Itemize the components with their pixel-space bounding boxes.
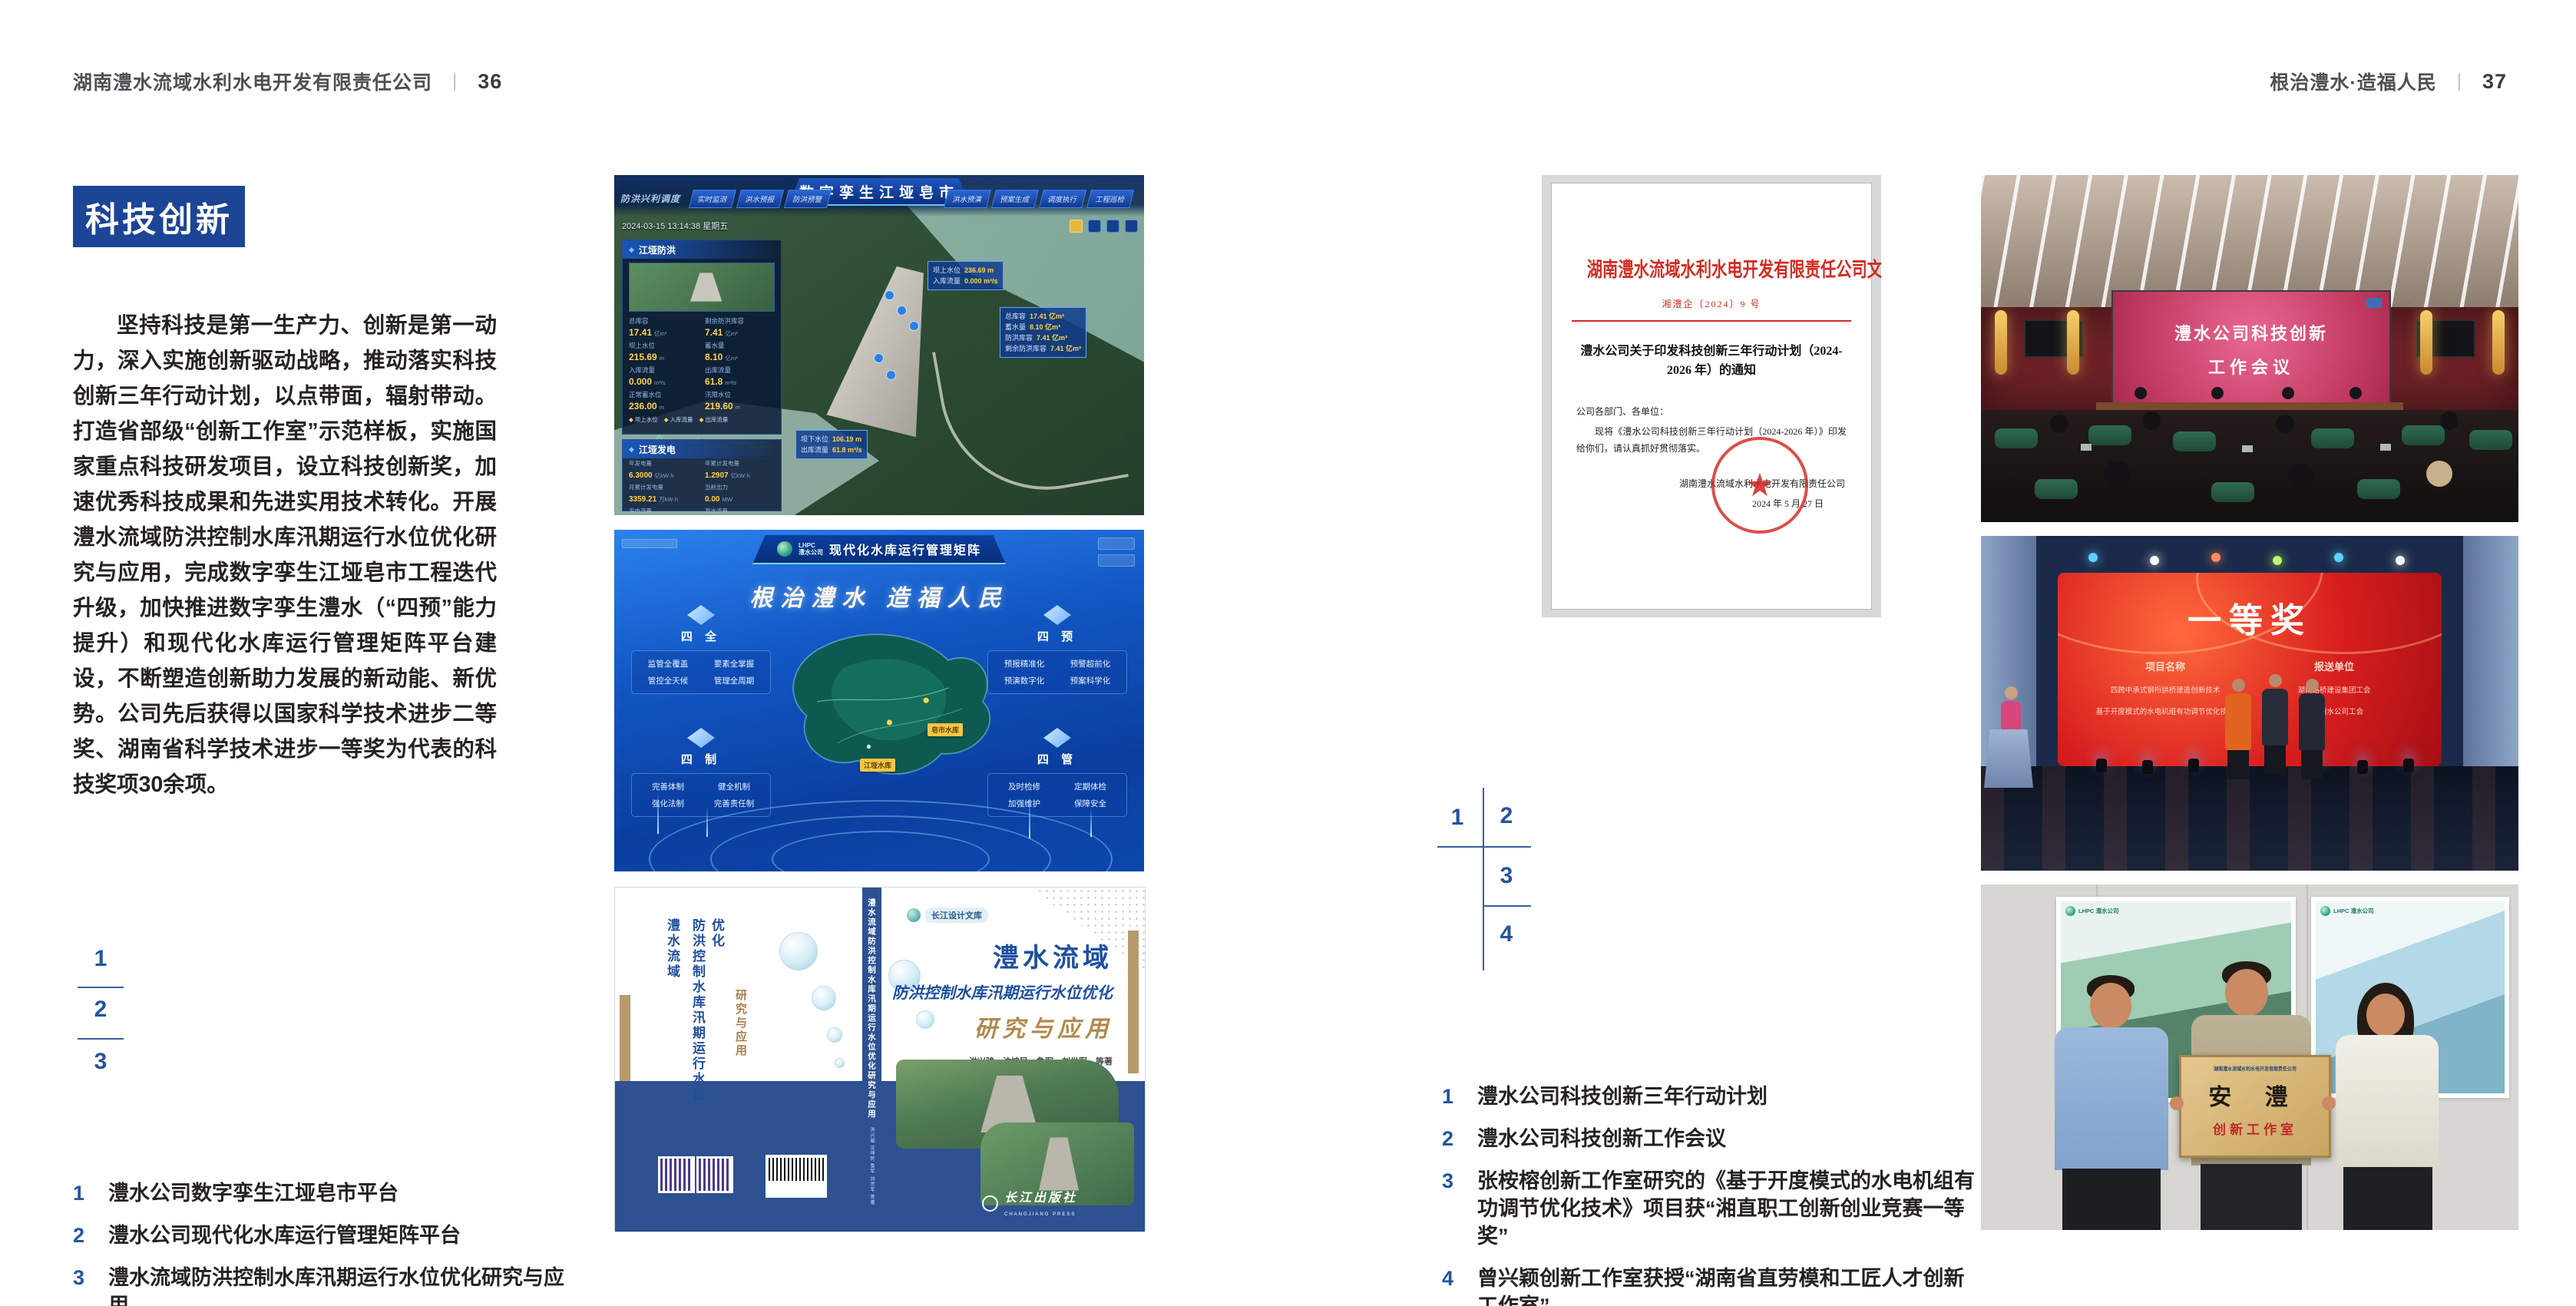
tan-bar xyxy=(1128,931,1139,1073)
alert-icon xyxy=(1088,220,1101,233)
spotlight xyxy=(2211,553,2221,562)
legend-item: ◆坝上水位 xyxy=(629,415,658,424)
panel-header: ◆ 江垭防洪 xyxy=(623,240,781,259)
spotlight xyxy=(2088,553,2098,562)
stat: 剩余防洪库容7.41亿m³ xyxy=(705,316,775,340)
magazine-spread: 湖南澧水流域水利水电开发有限责任公司 | 36 根治澧水·造福人民 | 37 科… xyxy=(0,0,2576,1306)
innovation-studio-plaque: 湖南澧水流域水利水电开发有限责任公司 安 澧 创新工作室 xyxy=(2179,1055,2331,1158)
chair xyxy=(2402,425,2445,445)
caption-row: 4 曾兴颖创新工作室获授“湖南省直劳模和工匠人才创新工作室” xyxy=(1442,1265,1979,1306)
matrix-timestamp-chip xyxy=(622,539,677,548)
figure-number-4: 4 xyxy=(1490,921,1523,947)
dashboard-tabs-right: 洪水预演 预案生成 调度执行 工程巡检 xyxy=(946,190,1136,208)
caption-text: 澧水公司现代化水库运行管理矩阵平台 xyxy=(108,1222,461,1249)
page-number-left: 36 xyxy=(478,70,502,94)
caption-number: 1 xyxy=(1442,1083,1477,1110)
figure-official-document: 湖南澧水流域水利水电开发有限责任公司文件 湘澧企〔2024〕9 号 澧水公司关于… xyxy=(1542,175,1881,617)
attendee xyxy=(2050,415,2068,433)
spotlight xyxy=(2150,556,2159,565)
caption-text: 澧水公司科技创新工作会议 xyxy=(1477,1125,1726,1152)
back-cover-title: 澧水流域 防洪控制水库汛期运行水位优化 研究与应用 xyxy=(663,918,749,1103)
logo-text: LHPC澧水公司 xyxy=(799,542,823,556)
reservoir-label: 皂市水库 xyxy=(928,723,963,736)
plaque-name: 安 澧 xyxy=(2181,1078,2329,1112)
attendee xyxy=(2440,412,2459,430)
tab-plan-generation: 预案生成 xyxy=(991,190,1039,208)
barcode xyxy=(766,1155,827,1198)
matrix-header: LHPC澧水公司 现代化水库运行管理矩阵 xyxy=(752,535,1006,564)
stage-light xyxy=(2096,759,2107,772)
chair xyxy=(2035,479,2078,499)
presidium-member xyxy=(2211,387,2224,399)
maintenance-icon xyxy=(1043,728,1071,748)
caption-number: 2 xyxy=(73,1222,108,1249)
series-logo-icon xyxy=(907,908,921,922)
dam-shape xyxy=(690,273,722,301)
figure-book-cover: 澧水流域 防洪控制水库汛期运行水位优化 研究与应用 澧水流域防洪控制水库汛期运行… xyxy=(614,887,1146,1232)
chair xyxy=(2357,479,2400,499)
matrix-group-siquan: 四 全 监管全覆盖要素全掌握 管控全天候管理全周期 xyxy=(631,605,771,694)
caption-number: 2 xyxy=(1442,1125,1477,1152)
callout-downstream: 坝下水位106.19 m 出库流量61.8 m³/s xyxy=(795,430,868,459)
stat: 年累计发电量1.2907亿kW·h xyxy=(705,458,775,482)
figure-index-rule xyxy=(1483,905,1531,907)
stat: 出库流量61.8m³/s xyxy=(705,365,775,389)
figure-index-rule xyxy=(78,1038,124,1040)
seal-star: ★ xyxy=(1745,466,1774,504)
chair xyxy=(2088,425,2131,445)
power-stats: 年发电量6.3000亿kW·h 年累计发电量1.2907亿kW·h 月累计发电量… xyxy=(623,458,781,515)
plaque-company-line: 湖南澧水流域水利水电开发有限责任公司 xyxy=(2187,1064,2323,1072)
panel-title: 江垭发电 xyxy=(639,443,676,456)
dashboard-tabs-left: 实时监测 洪水预报 防洪预警 xyxy=(691,190,834,208)
map-marker xyxy=(885,290,894,300)
dashboard-toolbar xyxy=(1070,220,1138,233)
laptop xyxy=(2380,444,2391,451)
caption-row: 3 张桉榕创新工作室研究的《基于开度模式的水电机组有功调节优化技术》项目获“湘直… xyxy=(1442,1167,1979,1250)
light-pillar xyxy=(706,806,708,837)
wall-lamp xyxy=(2420,310,2432,375)
page-number-right: 37 xyxy=(2482,70,2507,94)
publisher-icon xyxy=(982,1195,998,1212)
stage-light xyxy=(2403,759,2414,772)
caption-row: 3 澧水流域防洪控制水库汛期运行水位优化研究与应用 xyxy=(73,1264,564,1306)
stat: 正常蓄水位236.00m xyxy=(629,389,699,414)
caption-text: 曾兴颖创新工作室获授“湖南省直劳模和工匠人才创新工作室” xyxy=(1477,1265,1979,1306)
caption-text: 澧水流域防洪控制水库汛期运行水位优化研究与应用 xyxy=(108,1264,564,1306)
legend-item: ◆出库流量 xyxy=(699,415,729,424)
map-marker xyxy=(874,353,884,363)
figure-index-vline xyxy=(1483,788,1484,970)
official-seal: ★ xyxy=(1711,437,1808,534)
figure-digital-twin-dashboard: 防洪兴利调度 数字孪生江垭皂市 实时监测 洪水预报 防洪预警 洪水预演 预案生成… xyxy=(614,175,1144,515)
caption-number: 4 xyxy=(1442,1265,1477,1306)
lhpc-logo-icon xyxy=(2065,906,2075,916)
attendee xyxy=(2104,461,2130,487)
photo-award-ceremony: 一等奖 项目名称 四跨中承式钢桁拱桥建造创新技术 基于开度模式的水电机组有功调节… xyxy=(1981,536,2518,871)
stat: 发电流量0.00m³/s xyxy=(629,506,699,515)
stat: 当前出力0.00MW xyxy=(705,482,775,506)
plaque-subtitle: 创新工作室 xyxy=(2181,1119,2329,1138)
laptop xyxy=(2081,444,2092,451)
callout-capacity: 总库容17.41 亿m³ 蓄水量8.10 亿m³ 防洪库容7.41 亿m³ 剩余… xyxy=(1000,307,1086,358)
person-legs xyxy=(2062,1169,2161,1230)
slogan-text: 根治澧水·造福人民 xyxy=(2270,68,2436,95)
water-droplet xyxy=(835,1058,845,1068)
presidium-member xyxy=(2135,387,2147,399)
lhpc-logo-icon xyxy=(2320,906,2330,916)
stat: 入库流量0.000m³/s xyxy=(629,365,699,389)
stat: 蓄水量8.10亿m³ xyxy=(705,340,775,365)
tab-dispatch-execution: 调度执行 xyxy=(1039,190,1086,208)
person-head xyxy=(2366,994,2405,1037)
person-shirt-blue xyxy=(2055,1027,2168,1170)
caption-number: 1 xyxy=(73,1179,108,1207)
power-generation-panel: ◆ 江垭发电 年发电量6.3000亿kW·h 年累计发电量1.2907亿kW·h… xyxy=(622,439,782,511)
caption-number: 3 xyxy=(73,1264,108,1306)
spotlight xyxy=(2273,556,2282,565)
stage-light xyxy=(2142,760,2153,774)
person-shirt-white xyxy=(2336,1035,2439,1169)
flood-control-panel: ◆ 江垭防洪 总库容17.41亿m³ 剩余防洪库容7.41亿m³ 坝上水位215… xyxy=(622,240,782,435)
project-column: 项目名称 四跨中承式钢桁拱桥建造创新技术 基于开度模式的水电机组有功调节优化技术 xyxy=(2081,659,2250,716)
stat: 年发电量6.3000亿kW·h xyxy=(629,458,699,482)
presidium-member xyxy=(2349,387,2362,399)
map-marker xyxy=(886,370,896,380)
podium xyxy=(1984,729,2033,788)
document-salutation: 公司各部门、各单位： xyxy=(1576,405,1668,418)
figure-number-2: 2 xyxy=(78,997,124,1023)
company-name: 湖南澧水流域水利水电开发有限责任公司 xyxy=(73,68,432,95)
chart-legend: ◆坝上水位 ◆入库流量 ◆出库流量 xyxy=(623,414,781,424)
caption-text: 张桉榕创新工作室研究的《基于开度模式的水电机组有功调节优化技术》项目获“湘直职工… xyxy=(1477,1167,1979,1250)
presidium-table xyxy=(2096,402,2403,410)
flood-stats: 总库容17.41亿m³ 剩余防洪库容7.41亿m³ 坝上水位215.69m 蓄水… xyxy=(623,316,781,414)
hand xyxy=(2322,1096,2336,1110)
person-head xyxy=(2090,983,2131,1029)
awardee-suit xyxy=(2299,679,2325,779)
figure-number-2: 2 xyxy=(1490,803,1523,829)
figure-number-3: 3 xyxy=(78,1049,124,1075)
chair xyxy=(1995,428,2038,448)
diamond-icon: ◆ xyxy=(629,445,634,454)
spotlight xyxy=(2334,553,2343,562)
publisher-logo: 长江出版社CHANGJIANG PRESS xyxy=(982,1187,1077,1219)
figure-index-rule xyxy=(1437,846,1531,848)
photo-innovation-meeting: 澧水公司科技创新 工作会议 xyxy=(1981,175,2518,522)
award-title: 一等奖 xyxy=(2058,593,2442,642)
figure-number-1: 1 xyxy=(78,946,124,972)
light-pillar xyxy=(1029,798,1030,838)
dashboard-menu-label: 防洪兴利调度 xyxy=(620,192,680,205)
tab-flood-rehearsal: 洪水预演 xyxy=(944,190,991,208)
front-cover-titles: 澧水流域 防洪控制水库汛期运行水位优化 研究与应用 洪兴骏 沈坤民 鲁军 刘世军… xyxy=(891,937,1113,1067)
stat: 月累计发电量3359.21万kW·h xyxy=(629,482,699,506)
panel-header: ◆ 江垭发电 xyxy=(623,440,781,458)
institution-icon xyxy=(687,728,715,748)
figure-index-rule xyxy=(78,987,124,988)
matrix-group-siguan: 四 管 及时检修定期体检 加强维护保障安全 xyxy=(987,728,1127,817)
caption-row: 2 澧水公司现代化水库运行管理矩阵平台 xyxy=(73,1222,564,1249)
attendee xyxy=(2142,412,2161,430)
photo-studio-plaque: LHPC 澧水公司 LHPC 澧水公司 湖南澧水流域水利水电开发有限责任公司 安… xyxy=(1981,884,2518,1230)
caption-row: 2 澧水公司科技创新工作会议 xyxy=(1442,1125,1979,1152)
tab-realtime-monitor: 实时监测 xyxy=(689,190,736,208)
settings-icon xyxy=(1125,220,1138,233)
document-title: 澧水公司关于印发科技创新三年行动计划（2024-2026 年）的通知 xyxy=(1575,342,1848,380)
legend-item: ◆入库流量 xyxy=(664,415,693,424)
red-rule xyxy=(1572,320,1851,322)
figure-number-3: 3 xyxy=(1490,863,1523,889)
water-droplet xyxy=(827,1027,842,1043)
stat: 坝上水位215.69m xyxy=(629,340,699,365)
tab-project-inspection: 工程巡检 xyxy=(1086,190,1134,208)
person-legs xyxy=(2343,1167,2432,1230)
series-badge: 长江设计文库 xyxy=(907,908,988,923)
reservoir-label: 江垭水库 xyxy=(860,759,895,772)
laptop xyxy=(2242,445,2253,452)
screen-logo xyxy=(2366,298,2382,308)
water-droplet xyxy=(812,986,836,1010)
document-body: 现将《澧水公司科技创新三年行动计划（2024-2026 年）》印发给你们，请认真… xyxy=(1576,423,1847,457)
document-sheet: 湖南澧水流域水利水电开发有限责任公司文件 湘澧企〔2024〕9 号 澧水公司关于… xyxy=(1551,183,1872,610)
matrix-title: 现代化水库运行管理矩阵 xyxy=(829,540,981,558)
stage-light xyxy=(2357,760,2368,774)
ceiling xyxy=(1981,175,2518,307)
user-icon xyxy=(1070,220,1083,233)
tab-flood-warning: 防洪预警 xyxy=(784,190,832,208)
header-divider: | xyxy=(452,71,458,92)
stat: 弃水流量0.00m³/s xyxy=(705,506,775,515)
dashboard-timestamp: 2024-03-15 13:14:38 星期五 xyxy=(622,220,728,232)
wall-lamp xyxy=(1995,310,2007,375)
attendee xyxy=(2288,464,2314,490)
caption-text: 澧水公司数字孪生江垭皂市平台 xyxy=(108,1179,398,1207)
header-divider: | xyxy=(2457,71,2462,92)
chair xyxy=(2311,428,2354,448)
dam-shape xyxy=(1039,1137,1079,1190)
page-right-header: 根治澧水·造福人民 | 37 xyxy=(2270,68,2507,95)
light-pillar xyxy=(1090,808,1092,837)
dam-thumbnail xyxy=(629,263,775,312)
map-marker xyxy=(897,306,907,316)
attendee xyxy=(2276,415,2294,433)
chair xyxy=(2173,431,2216,451)
matrix-button xyxy=(1098,537,1135,550)
person-head xyxy=(2225,969,2268,1017)
qr-code xyxy=(696,1156,733,1193)
caption-list-right: 1 澧水公司科技创新三年行动计划 2 澧水公司科技创新工作会议 3 张桉榕创新工… xyxy=(1442,1083,1979,1306)
matrix-button xyxy=(1098,554,1135,567)
stage-light xyxy=(2188,759,2199,772)
chair xyxy=(2211,482,2254,502)
matrix-group-sizhi: 四 制 完善体制健全机制 强化法制完善责任制 xyxy=(631,728,771,817)
map-marker xyxy=(909,321,919,331)
book-spine: 澧水流域防洪控制水库汛期运行水位优化研究与应用 洪兴骏 沈坤民 鲁军 刘世军 等… xyxy=(862,888,881,1232)
page-left-header: 湖南澧水流域水利水电开发有限责任公司 | 36 xyxy=(73,68,502,95)
figure-management-matrix: LHPC澧水公司 现代化水库运行管理矩阵 根治澧水 造福人民 江垭水库 皂市水库… xyxy=(614,530,1144,871)
person-legs xyxy=(2201,1164,2302,1230)
light-pillar xyxy=(657,791,659,834)
monitor-icon xyxy=(687,605,715,625)
chair xyxy=(2469,430,2512,450)
caption-list-left: 1 澧水公司数字孪生江垭皂市平台 2 澧水公司现代化水库运行管理矩阵平台 3 澧… xyxy=(73,1179,564,1306)
wall-lamp xyxy=(2492,310,2505,375)
lhpc-logo-icon xyxy=(777,541,792,557)
stat: 总库容17.41亿m³ xyxy=(629,316,699,340)
forecast-icon xyxy=(1043,605,1071,625)
callout-upstream: 坝上水位236.69 m 入库流量0.000 m³/s xyxy=(928,261,1004,290)
wall-lamp xyxy=(2067,310,2079,375)
qr-code xyxy=(658,1156,695,1193)
spotlight xyxy=(2396,556,2405,565)
tan-block xyxy=(620,995,630,1081)
caption-row: 1 澧水公司数字孪生江垭皂市平台 xyxy=(73,1179,564,1207)
caption-row: 1 澧水公司科技创新三年行动计划 xyxy=(1442,1083,1979,1110)
document-number: 湘澧企〔2024〕9 号 xyxy=(1552,297,1871,310)
attendee xyxy=(2426,461,2452,487)
stage-floor xyxy=(1981,766,2518,871)
matrix-group-siyu: 四 预 预报精准化预警超前化 预演数字化预案科学化 xyxy=(987,605,1127,694)
awardee-orange xyxy=(2225,679,2251,779)
caption-number: 3 xyxy=(1442,1167,1477,1250)
tab-flood-forecast: 洪水预报 xyxy=(736,190,784,208)
caption-text: 澧水公司科技创新三年行动计划 xyxy=(1477,1083,1767,1110)
figure-number-1: 1 xyxy=(1440,805,1474,831)
basin-map xyxy=(741,613,1017,805)
panel-title: 江垭防洪 xyxy=(639,243,676,256)
diamond-icon: ◆ xyxy=(629,246,634,254)
section-body-text: 坚持科技是第一生产力、创新是第一动力，深入实施创新驱动战略，推动落实科技创新三年… xyxy=(73,308,497,802)
stat: 汛限水位219.60m xyxy=(705,389,775,414)
layers-icon xyxy=(1106,220,1119,233)
presenter-suit xyxy=(2262,674,2288,775)
presidium-member xyxy=(2282,387,2294,399)
hand xyxy=(2170,1096,2184,1110)
section-title-badge: 科技创新 xyxy=(73,186,245,247)
document-header: 湖南澧水流域水利水电开发有限责任公司文件 xyxy=(1587,254,1836,283)
water-droplet xyxy=(779,932,818,970)
